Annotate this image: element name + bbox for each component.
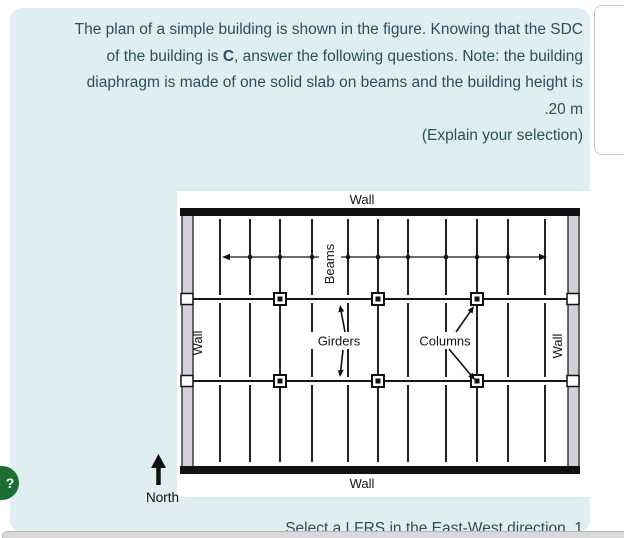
column-arrowhead-icon bbox=[468, 306, 474, 314]
next-section-bar bbox=[2, 531, 624, 538]
beams-label: Beams bbox=[322, 243, 337, 284]
north-arrow-icon bbox=[140, 451, 185, 487]
question-line: .20 m bbox=[40, 97, 583, 124]
girder-arrowhead-icon bbox=[338, 305, 344, 312]
question-text: The plan of a simple building is shown i… bbox=[40, 17, 583, 150]
right-side-panel bbox=[594, 5, 624, 155]
wall-left-label: Wall bbox=[190, 330, 205, 355]
bottom-wall bbox=[180, 466, 580, 474]
question-card: The plan of a simple building is shown i… bbox=[10, 8, 590, 532]
question-mark-icon: ? bbox=[6, 475, 15, 491]
columns-label: Columns bbox=[419, 334, 471, 349]
north-indicator: North bbox=[140, 451, 185, 505]
right-wall bbox=[568, 215, 579, 467]
quiz-page: The plan of a simple building is shown i… bbox=[0, 0, 624, 538]
beam-lines bbox=[220, 219, 545, 462]
wall-column-block bbox=[567, 376, 579, 387]
arrowhead-left-icon bbox=[222, 254, 230, 260]
question-line: of the building is C, answer the followi… bbox=[40, 44, 583, 71]
girder-arrowhead-icon bbox=[338, 370, 344, 377]
building-plan-svg: Beams Girders Columns bbox=[177, 191, 590, 497]
wall-bottom-label: Wall bbox=[350, 476, 375, 491]
girders-label: Girders bbox=[318, 334, 361, 349]
wall-right-label: Wall bbox=[550, 333, 565, 358]
question-line: diaphragm is made of one solid slab on b… bbox=[40, 70, 583, 97]
question-line: The plan of a simple building is shown i… bbox=[40, 17, 583, 44]
wall-column-block bbox=[567, 294, 579, 305]
wall-column-block bbox=[181, 294, 193, 305]
wall-column-block bbox=[181, 376, 193, 387]
building-plan-figure: Beams Girders Columns bbox=[177, 191, 590, 497]
top-wall bbox=[180, 208, 580, 216]
wall-top-label: Wall bbox=[350, 192, 375, 207]
sdc-value: C bbox=[223, 48, 234, 65]
north-label: North bbox=[140, 490, 185, 505]
explain-note: (Explain your selection) bbox=[40, 123, 583, 150]
